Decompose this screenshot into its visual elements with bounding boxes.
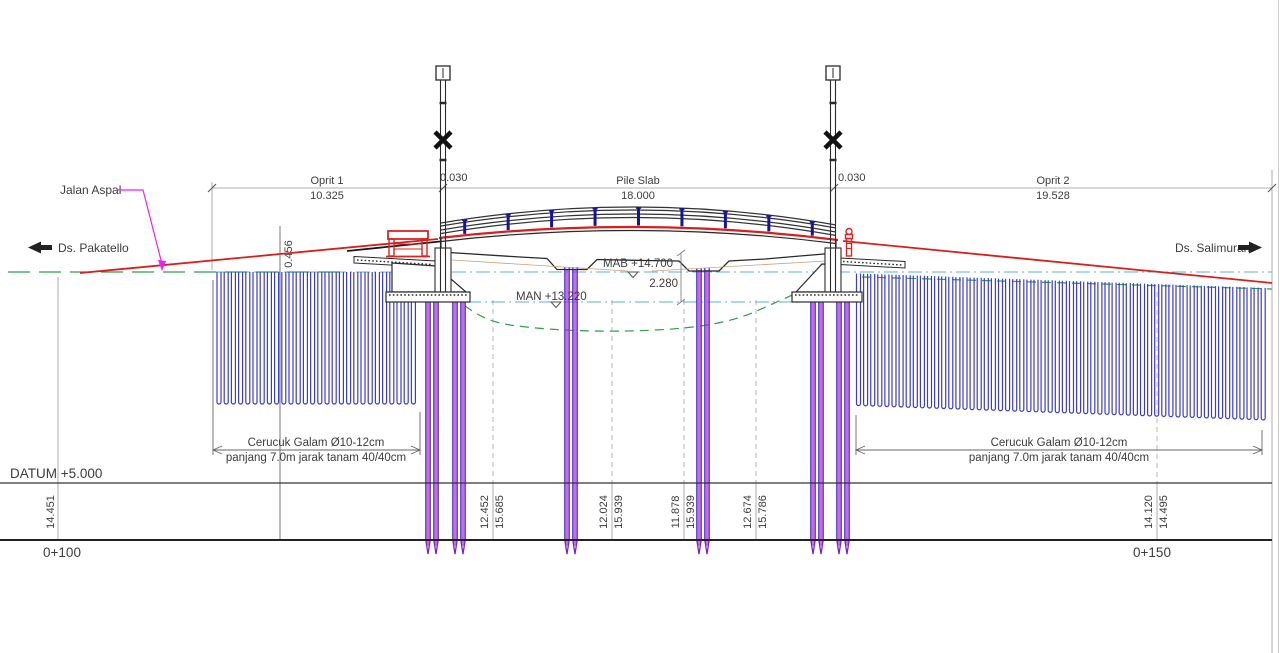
cerucuk-right-dimension <box>856 415 1262 455</box>
gap-right-label: 0.030 <box>838 172 866 184</box>
bridge-road-surface <box>439 227 838 240</box>
oprit2-name-label: Oprit 2 <box>1036 175 1069 187</box>
elevation-value: 15.786 <box>757 495 769 529</box>
elevation-value: 15.939 <box>685 495 697 529</box>
cerucuk-field-right <box>857 274 1266 420</box>
cerucuk-right-label-line1: Cerucuk Galam Ø10-12cm <box>991 437 1128 449</box>
man-level-label: MAN +13.220 <box>516 291 587 303</box>
elevation-value: 15.939 <box>613 495 625 529</box>
elevation-value: 12.024 <box>598 495 610 529</box>
station-right-label: 0+150 <box>1133 545 1171 560</box>
elevation-value: 11.878 <box>670 496 682 529</box>
station-left-label: 0+100 <box>43 545 81 560</box>
cerucuk-left-dimension <box>213 280 420 455</box>
elevation-value: 14.495 <box>1158 495 1170 529</box>
cerucuk-right-label-line2: panjang 7.0m jarak tanam 40/40cm <box>969 452 1149 464</box>
oprit1-name-label: Oprit 1 <box>310 175 343 187</box>
mab-level-label: MAB +14.700 <box>603 258 673 270</box>
bridge-elevation-drawing: 0.456 Oprit 1 10.325 0.030 Pile Slab 18.… <box>0 0 1280 653</box>
oprit1-value-label: 10.325 <box>310 190 344 202</box>
elevation-value: 12.674 <box>742 495 754 529</box>
drawing-canvas: 0.456 Oprit 1 10.325 0.030 Pile Slab 18.… <box>0 0 1280 653</box>
direction-arrow-left-icon <box>28 242 52 254</box>
oprit2-value-label: 19.528 <box>1036 190 1070 202</box>
riverbed-line <box>441 287 808 331</box>
cerucuk-left-label-line2: panjang 7.0m jarak tanam 40/40cm <box>226 452 406 464</box>
pile-slab-name-label: Pile Slab <box>616 175 659 187</box>
elevation-values: 14.451 12.452 15.685 12.024 15.939 11.87… <box>45 495 1170 529</box>
mab-water-symbol <box>628 272 638 278</box>
clearance-value-label: 2.280 <box>649 278 678 290</box>
elevation-value: 14.120 <box>1143 495 1155 529</box>
clearance-dimension <box>677 250 685 305</box>
pile-slab-value-label: 18.000 <box>621 190 655 202</box>
elevation-value: 12.452 <box>479 495 491 529</box>
elevation-value: 15.685 <box>494 495 506 529</box>
elevation-value: 14.451 <box>45 495 57 529</box>
road-surface-label: Jalan Aspal <box>60 183 121 197</box>
datum-label: DATUM +5.000 <box>10 466 102 481</box>
direction-left-label: Ds. Pakatello <box>58 241 129 255</box>
cerucuk-left-label-line1: Cerucuk Galam Ø10-12cm <box>248 437 385 449</box>
road-left-slope <box>80 239 438 273</box>
gap-left-label: 0.030 <box>440 172 468 184</box>
